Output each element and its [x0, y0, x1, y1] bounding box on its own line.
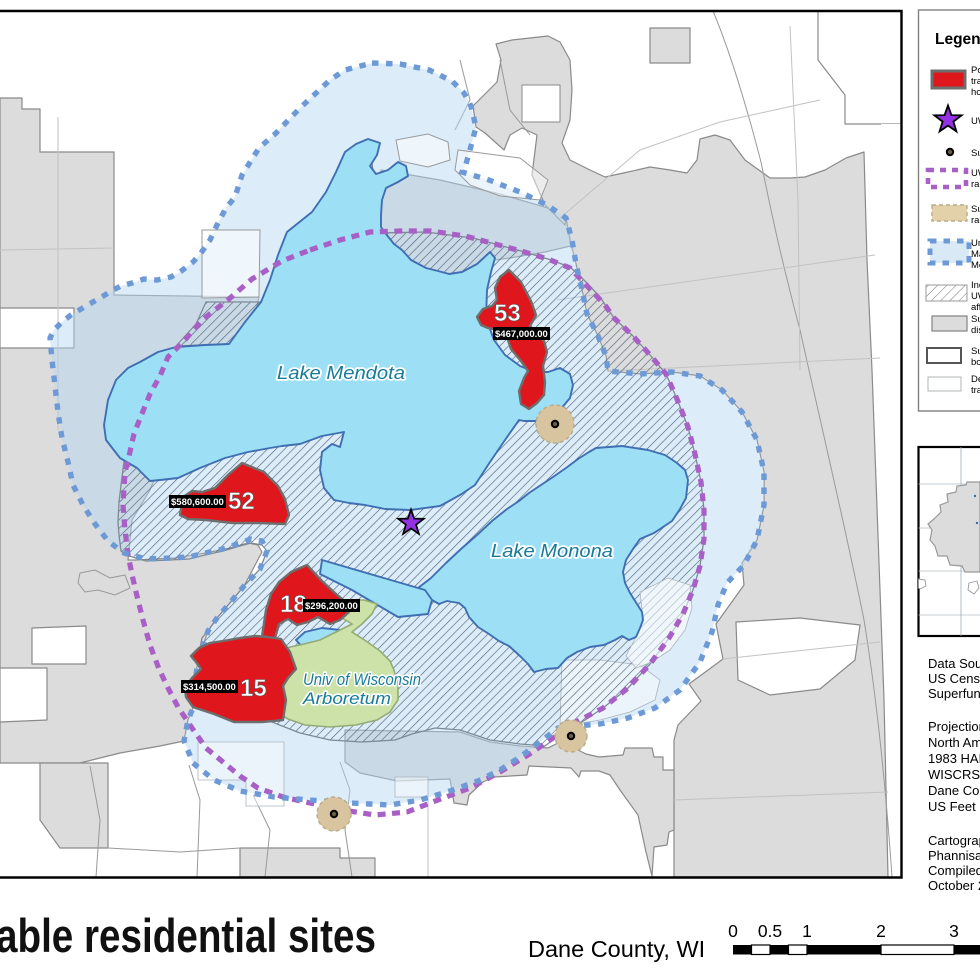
svg-text:Cartographer:: Cartographer:	[928, 833, 980, 848]
svg-text:1: 1	[802, 921, 812, 941]
svg-text:tra: tra	[971, 385, 980, 396]
svg-text:Mc: Mc	[971, 260, 980, 271]
svg-text:Arboretum: Arboretum	[302, 689, 391, 708]
svg-text:$314,500.00: $314,500.00	[183, 682, 236, 693]
svg-text:3: 3	[949, 921, 959, 941]
svg-text:Lake Monona: Lake Monona	[491, 541, 613, 561]
svg-text:Su: Su	[971, 346, 980, 357]
svg-text:trans: trans	[971, 76, 980, 87]
svg-text:0: 0	[728, 921, 738, 941]
svg-text:US Census Bureau,: US Census Bureau,	[928, 671, 980, 686]
svg-text:Legend: Legend	[935, 31, 980, 48]
svg-text:UW: UW	[971, 168, 980, 179]
svg-text:De: De	[971, 374, 980, 385]
svg-text:affo: affo	[971, 302, 980, 313]
svg-text:$580,600.00: $580,600.00	[171, 497, 224, 508]
svg-text:1983 HARN: 1983 HARN	[928, 751, 980, 766]
svg-text:Ma: Ma	[971, 249, 980, 260]
svg-text:$467,000.00: $467,000.00	[495, 329, 548, 340]
svg-text:Superfund Sites: Superfund Sites	[928, 686, 980, 701]
svg-text:UW: UW	[971, 116, 980, 127]
svg-text:2: 2	[876, 921, 886, 941]
svg-text:Univ of Wisconsin: Univ of Wisconsin	[303, 670, 421, 689]
svg-text:rad: rad	[971, 215, 980, 226]
svg-text:Inc: Inc	[971, 280, 980, 291]
svg-text:53: 53	[494, 300, 521, 327]
svg-text:hous: hous	[971, 87, 980, 98]
svg-text:18: 18	[280, 591, 307, 618]
svg-text:dis: dis	[971, 325, 980, 336]
svg-text:Dane County: Dane County	[928, 783, 980, 798]
svg-text:$296,200.00: $296,200.00	[305, 601, 358, 612]
svg-text:rad: rad	[971, 179, 980, 190]
svg-text:UW: UW	[971, 291, 980, 302]
svg-text:North American Datum: North American Datum	[928, 735, 980, 750]
svg-text:October 2018: October 2018	[928, 878, 980, 893]
svg-text:Projection:: Projection:	[928, 719, 980, 734]
svg-text:bo: bo	[971, 357, 980, 368]
svg-text:Lake Mendota: Lake Mendota	[277, 363, 405, 383]
svg-text:Data Sources:: Data Sources:	[928, 656, 980, 671]
svg-text:0.5: 0.5	[758, 921, 782, 941]
svg-text:Su: Su	[971, 204, 980, 215]
svg-text:15: 15	[240, 675, 267, 702]
svg-text:Phannisa N.: Phannisa N.	[928, 848, 980, 863]
svg-text:able residential sites: able residential sites	[0, 909, 376, 962]
svg-text:Compiled using: Compiled using	[928, 863, 980, 878]
svg-text:Pote: Pote	[971, 65, 980, 76]
svg-text:Urb: Urb	[971, 238, 980, 249]
svg-text:WISCRS Zone: WISCRS Zone	[928, 767, 980, 782]
svg-text:US Feet: US Feet	[928, 799, 976, 814]
svg-text:Dane County, WI: Dane County, WI	[528, 936, 705, 962]
svg-text:Su: Su	[971, 314, 980, 325]
svg-text:Su: Su	[971, 148, 980, 159]
svg-text:52: 52	[228, 488, 255, 515]
